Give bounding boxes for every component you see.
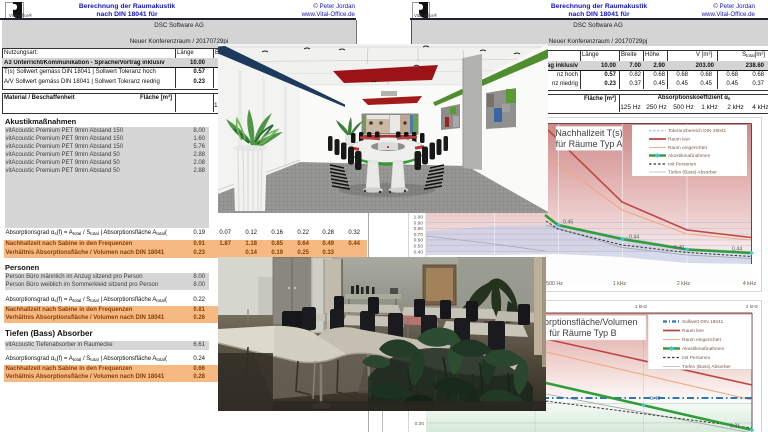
svg-text:0.45: 0.45 [563, 220, 573, 226]
svg-text:500 Hz: 500 Hz [546, 281, 563, 287]
svg-text:Raum leer: Raum leer [668, 137, 691, 143]
svg-text:0.31: 0.31 [730, 424, 740, 430]
svg-text:1.00: 1.00 [414, 215, 424, 221]
svg-text:Raum eingerichtet: Raum eingerichtet [668, 145, 708, 151]
svg-text:1 kHz: 1 kHz [635, 304, 648, 310]
svg-text:0.90: 0.90 [414, 220, 424, 226]
svg-text:0.40: 0.40 [674, 245, 684, 251]
svg-text:0.50: 0.50 [414, 244, 424, 250]
svg-text:mit Personen: mit Personen [668, 162, 697, 168]
svg-text:Akustikmaßnahmen: Akustikmaßnahmen [668, 153, 711, 159]
svg-text:Raum leer: Raum leer [682, 328, 705, 334]
svg-text:mit Personen: mit Personen [682, 355, 711, 361]
svg-text:0.70: 0.70 [414, 232, 424, 238]
svg-text:Akustikmaßnahmen: Akustikmaßnahmen [682, 346, 725, 352]
svg-text:- 0.44: - 0.44 [626, 235, 639, 241]
svg-text:0.60: 0.60 [414, 238, 424, 244]
svg-text:0.44: 0.44 [732, 247, 742, 253]
svg-text:für Räume Typ B: für Räume Typ B [549, 328, 616, 338]
svg-text:0.40: 0.40 [414, 249, 424, 255]
svg-text:0.80: 0.80 [414, 226, 424, 232]
svg-text:2 kHz: 2 kHz [677, 281, 691, 287]
svg-text:0.30: 0.30 [415, 421, 425, 427]
svg-text:Sollwert DIN 18041: Sollwert DIN 18041 [682, 319, 724, 325]
svg-text:0.46: 0.46 [650, 396, 660, 402]
svg-text:Raum eingerichtet: Raum eingerichtet [682, 337, 722, 343]
svg-text:1 kHz: 1 kHz [613, 281, 627, 287]
svg-text:Nachhallzeit T(s): Nachhallzeit T(s) [555, 128, 622, 138]
svg-text:4 kHz: 4 kHz [743, 281, 757, 287]
svg-text:Tiefen (Bass) Absorber: Tiefen (Bass) Absorber [668, 170, 717, 176]
svg-text:2 kHz: 2 kHz [746, 304, 759, 310]
svg-text:Tiefen (Bass) Absorber: Tiefen (Bass) Absorber [682, 364, 731, 370]
svg-text:Toleranzbereich DIN 18041: Toleranzbereich DIN 18041 [668, 128, 726, 134]
svg-text:für Räume Typ A: für Räume Typ A [556, 139, 623, 149]
